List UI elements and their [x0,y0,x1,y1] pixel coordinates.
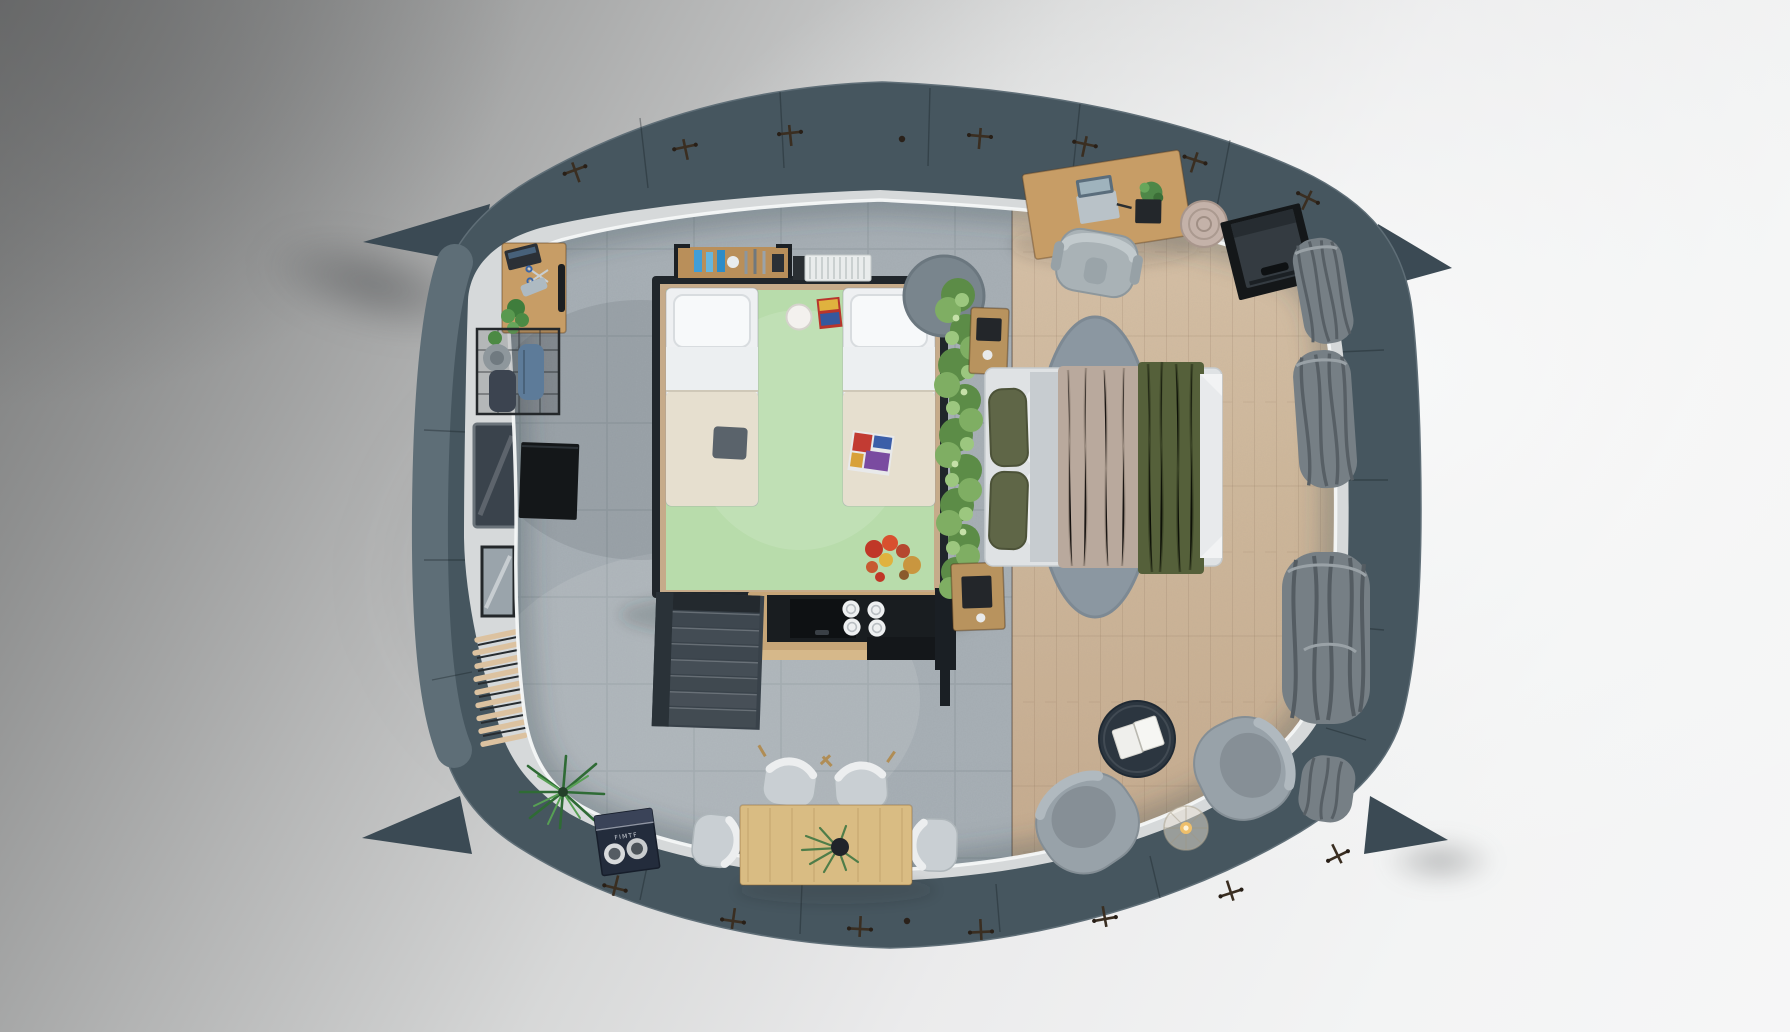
floor-lamp [1164,806,1208,850]
coffee-table [1099,701,1175,777]
loft-ac-unit [793,255,871,281]
dining-chair-left [690,813,740,869]
rack-plant [488,331,502,345]
double-bed [985,362,1222,574]
kitchen-black-cabinet [867,637,940,660]
olive-pillow [989,388,1029,466]
loft-shelf [676,246,790,278]
kids-loft [652,276,948,598]
rack-denim-bag [518,344,544,400]
render-stage: FIMTF [0,0,1790,1032]
bed-tablet [712,426,748,460]
bed-foot-sheet [1200,374,1222,558]
pillow [674,295,750,347]
desk-handle-rail [558,264,565,312]
rack-dark-bag [489,370,516,412]
pod-floorplan-svg: FIMTF [0,0,1790,1032]
game-box: FIMTF [594,808,660,875]
oven-handle [815,630,829,635]
basket-pouf [1181,201,1227,247]
nightstand-upper [969,307,1009,374]
dining-table [740,805,912,885]
stairs [652,592,765,730]
wire-storage-rack [477,329,559,414]
curtain-bundle-3 [1282,552,1370,724]
curtain-bundle-2 [1291,348,1358,490]
roof-fin-bottom-right [1364,796,1448,854]
comic-book-small [816,297,842,329]
nightstand-lower [951,562,1005,631]
shelf-bottle [694,250,702,272]
comic-book [847,430,894,475]
roof-fin-bottom-left [362,796,472,854]
desk-top-left [501,243,566,334]
olive-pillow [989,471,1029,549]
dining-chair-right [912,818,958,872]
twin-bed-left [666,288,758,506]
floor-tv-panel [519,442,580,520]
ball-lamp [787,305,812,330]
desk-notebook [1135,199,1161,223]
